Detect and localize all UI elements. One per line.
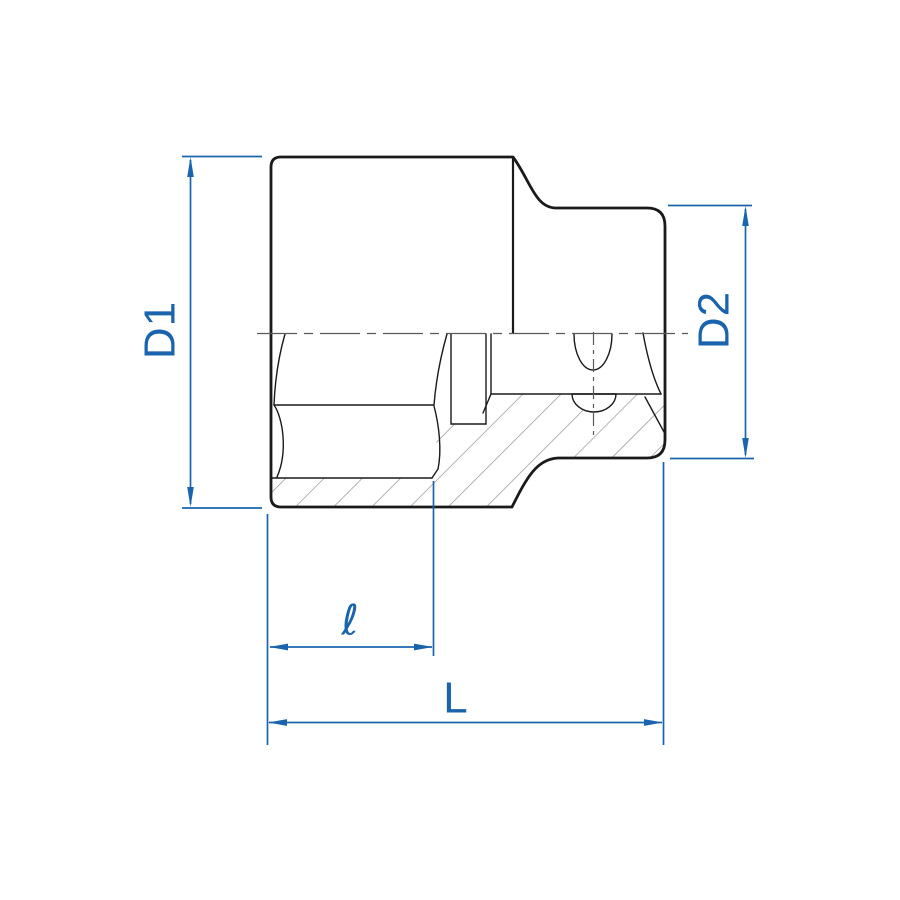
dimension-d1: D1 (136, 157, 263, 509)
d2-arrow-up (742, 206, 749, 226)
hex-cavity-entry-chamfer (274, 334, 285, 405)
drawing-canvas: D1 D2 ℓ L (0, 0, 900, 900)
l-total-dimension-label: L (443, 674, 468, 723)
clearance-groove (451, 334, 486, 424)
d1-arrow-up (187, 157, 194, 177)
drive-entry-chamfer (643, 333, 661, 394)
l-total-arrow-right (644, 719, 663, 726)
hex-cavity-end-upper-curve (434, 334, 447, 405)
d2-arrow-down (742, 438, 749, 458)
d1-arrow-down (187, 487, 194, 507)
l-total-arrow-left (268, 719, 287, 726)
hex-cavity-entry-lower-curve (274, 405, 283, 477)
d2-dimension-label: D2 (690, 291, 739, 349)
section-hatching (271, 394, 665, 507)
d1-dimension-label: D1 (136, 301, 185, 359)
l-partial-arrow-left (269, 644, 288, 651)
l-partial-arrow-right (414, 644, 433, 651)
socket-cross-section-drawing: D1 D2 ℓ L (0, 0, 900, 900)
dimension-d2: D2 (668, 206, 754, 459)
socket-body (257, 157, 688, 507)
l-partial-dimension-label: ℓ (340, 596, 358, 645)
